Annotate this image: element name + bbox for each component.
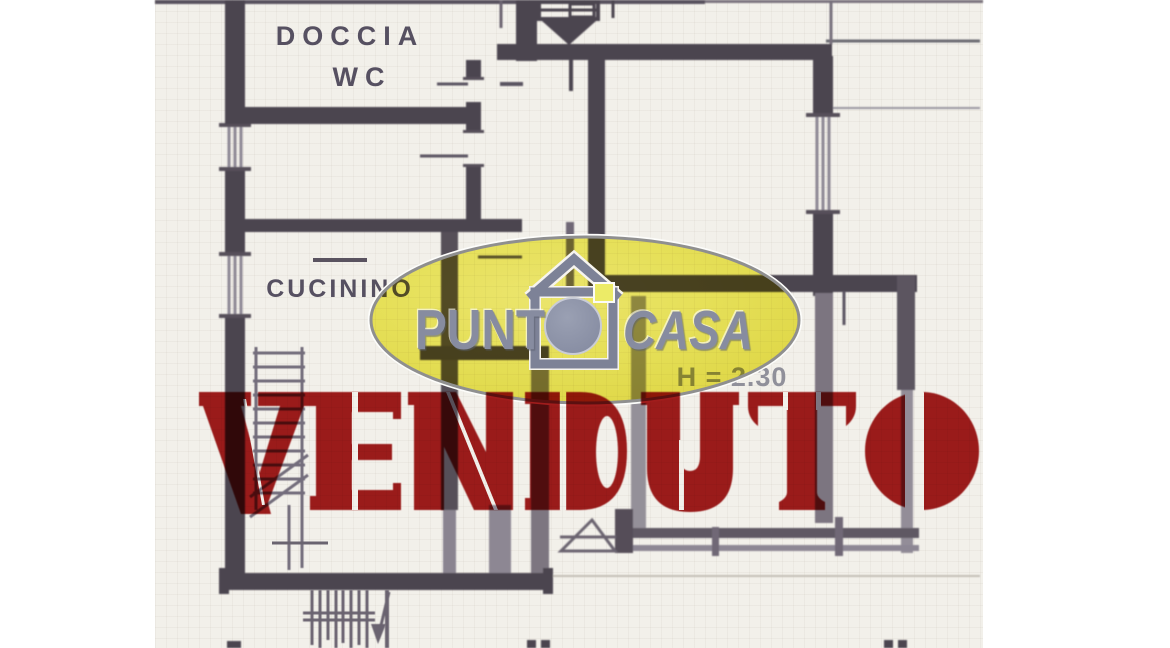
svg-text:PUNT: PUNT	[415, 298, 545, 362]
svg-text:WC: WC	[333, 62, 392, 92]
svg-text:DOCCIA: DOCCIA	[276, 21, 425, 51]
svg-text:CASA: CASA	[623, 299, 753, 361]
